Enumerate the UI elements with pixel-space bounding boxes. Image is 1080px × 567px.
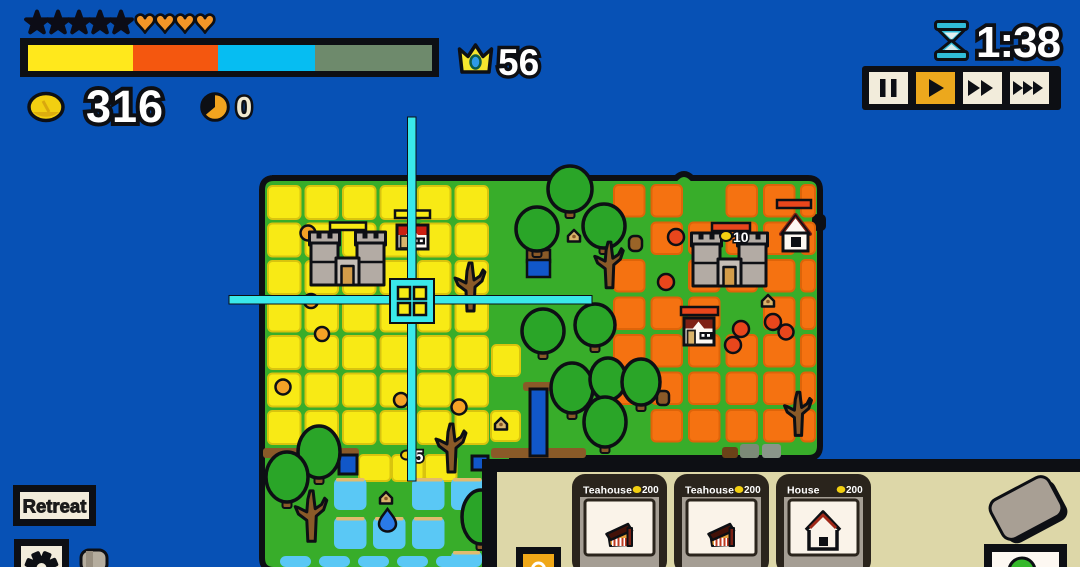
svg-text:1:38: 1:38: [976, 18, 1061, 67]
svg-text:56: 56: [498, 42, 539, 83]
svg-text:Teahouse: Teahouse: [685, 485, 734, 497]
svg-text:0: 0: [236, 92, 252, 124]
svg-text:10: 10: [733, 229, 749, 245]
svg-text:200: 200: [642, 485, 659, 496]
svg-text:200: 200: [744, 485, 761, 496]
svg-text:Retreat: Retreat: [23, 496, 87, 517]
svg-text:House: House: [787, 485, 820, 497]
svg-text:316: 316: [86, 81, 164, 132]
svg-text:200: 200: [846, 485, 863, 496]
svg-text:Teahouse: Teahouse: [583, 485, 632, 497]
